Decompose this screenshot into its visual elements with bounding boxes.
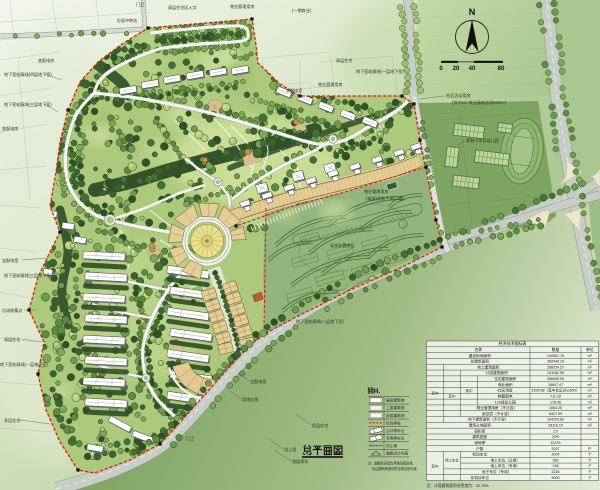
- svg-text:道路设计标高: 道路设计标高: [386, 451, 408, 456]
- svg-text:建筑密度: 建筑密度: [472, 434, 487, 439]
- svg-text:绿地率: 绿地率: [474, 440, 485, 445]
- svg-text:(其中3m²商业建筑面积600m²): (其中3m²商业建筑面积600m²): [452, 99, 507, 105]
- svg-text:140551.76: 140551.76: [547, 354, 564, 358]
- svg-text:变配电房: 变配电房: [2, 125, 18, 131]
- svg-text:241182.95: 241182.95: [547, 371, 564, 375]
- svg-text:交配电室: 交配电室: [286, 87, 302, 93]
- svg-text:标注图例构造均符合单位现为准。: 标注图例构造均符合单位现为准。: [372, 466, 420, 471]
- svg-text:地下室轮廓线(一层地下室): 地下室轮廓线(一层地下室): [356, 68, 404, 74]
- svg-text:架空层（不计容）: 架空层（不计容）: [482, 411, 512, 416]
- svg-text:专用停车位: 专用停车位: [386, 435, 405, 440]
- svg-text:地上建筑面积: 地上建筑面积: [477, 364, 499, 369]
- svg-text:2.0: 2.0: [553, 429, 558, 433]
- svg-text:地上车位（公用）: 地上车位（公用）: [491, 457, 521, 462]
- svg-text:33.0%: 33.0%: [550, 441, 561, 445]
- svg-text:5000: 5000: [552, 476, 560, 480]
- svg-text:公共停车位: 公共停车位: [386, 428, 405, 433]
- svg-text:用地红线: 用地红线: [242, 396, 258, 402]
- svg-text:现状安置房区: 现状安置房区: [330, 242, 355, 248]
- svg-text:2226: 2226: [552, 470, 560, 474]
- svg-text:136: 136: [553, 464, 559, 468]
- svg-text:多层住宅: 多层住宅: [4, 417, 20, 423]
- svg-text:规划小学及幼儿园: 规划小学及幼儿园: [466, 137, 499, 143]
- svg-text:地下车位（专用）: 地下车位（专用）: [482, 469, 512, 474]
- svg-text:物业管理用房: 物业管理用房: [318, 81, 343, 87]
- svg-text:6327.09: 6327.09: [549, 412, 562, 416]
- svg-text:206995.05: 206995.05: [547, 377, 564, 381]
- svg-text:数量: 数量: [552, 347, 560, 352]
- svg-text:高层住宅区入口: 高层住宅区入口: [168, 4, 197, 10]
- svg-text:个: 个: [588, 463, 592, 468]
- svg-text:住宅建筑面积: 住宅建筑面积: [494, 376, 516, 381]
- svg-text:120班幼儿园: 120班幼儿园: [495, 399, 516, 404]
- svg-text:容积率: 容积率: [474, 428, 485, 433]
- svg-text:282: 282: [553, 458, 559, 462]
- svg-text:(裙房)及地下室(二层): (裙房)及地下室(二层): [366, 195, 405, 201]
- svg-text:2024: 2024: [552, 453, 560, 457]
- svg-text:28118.15: 28118.15: [548, 424, 563, 428]
- svg-text:非机动车位: 非机动车位: [471, 475, 490, 480]
- svg-text:其中: 其中: [448, 394, 456, 399]
- svg-text:物管配电: 物管配电: [498, 393, 513, 398]
- svg-text:地上车位（专用）: 地上车位（专用）: [491, 463, 521, 468]
- svg-text:户数: 户数: [476, 446, 484, 451]
- svg-text:建设用地面积: 建设用地面积: [469, 353, 491, 358]
- svg-text:个: 个: [588, 457, 592, 462]
- svg-text:地下室轮廓线(三层地下室): 地下室轮廓线(三层地下室): [4, 101, 52, 107]
- svg-text:名称: 名称: [474, 347, 482, 352]
- svg-text:建筑占地面积: 建筑占地面积: [469, 423, 491, 428]
- svg-text:地下室轮廓线(四层地下室): 地下室轮廓线(四层地下室): [4, 71, 52, 77]
- svg-text:计容建筑面积: 计容建筑面积: [486, 370, 508, 375]
- svg-text:个: 个: [588, 469, 592, 474]
- svg-text:N: N: [469, 7, 476, 17]
- svg-text:40: 40: [469, 66, 476, 72]
- svg-text:二层建筑物: 二层建筑物: [386, 405, 405, 410]
- svg-text:268724.27: 268724.27: [547, 365, 564, 369]
- svg-text:地下室轮廓线(三层地下室): 地下室轮廓线(三层地下室): [4, 272, 52, 278]
- svg-text:单位: 单位: [586, 347, 594, 352]
- svg-text:(一期商业): (一期商业): [292, 7, 312, 13]
- svg-text:社区活动用房: 社区活动用房: [446, 92, 471, 98]
- svg-text:其中: 其中: [431, 391, 439, 396]
- svg-text:178.36: 178.36: [550, 400, 561, 404]
- svg-text:红线界线: 红线界线: [386, 420, 401, 425]
- svg-text:其中: 其中: [465, 388, 473, 393]
- svg-text:机动车位: 机动车位: [472, 452, 487, 457]
- svg-text:地下室轮廓线(一层地下室): 地下室轮廓线(一层地下室): [0, 361, 48, 367]
- svg-text:个: 个: [588, 452, 592, 457]
- svg-text:注：计容建筑面积毛密度为：32.75%: 注：计容建筑面积毛密度为：32.75%: [427, 483, 490, 488]
- svg-text:注：图纸标高值为黄海高程系统，: 注：图纸标高值为黄海高程系统，: [368, 461, 416, 466]
- svg-text:户: 户: [588, 446, 592, 451]
- svg-text:变配电房: 变配电房: [38, 57, 54, 63]
- svg-text:物业管理用房: 物业管理用房: [364, 188, 389, 194]
- svg-text:20: 20: [453, 66, 460, 72]
- svg-text:挡土墙: 挡土墙: [284, 446, 296, 452]
- svg-text:总建筑面积: 总建筑面积: [471, 359, 490, 364]
- svg-text:高层建筑物: 高层建筑物: [386, 398, 405, 403]
- svg-text:经济技术指标表: 经济技术指标表: [499, 340, 527, 346]
- svg-text:711.18: 711.18: [550, 394, 561, 398]
- svg-text:多层建筑物: 多层建筑物: [386, 413, 405, 418]
- svg-text:2027: 2027: [552, 447, 560, 451]
- svg-text:地面停车: 地面停车: [292, 458, 308, 464]
- svg-text:1539.68（其中社区办公600）: 1539.68（其中社区办公600）: [532, 388, 580, 393]
- svg-text:挡土墙: 挡土墙: [386, 443, 397, 448]
- svg-text:垃圾中转站: 垃圾中转站: [117, 17, 137, 23]
- svg-text:门卫: 门卫: [136, 1, 144, 7]
- svg-text:地上车位: 地上车位: [445, 458, 459, 463]
- svg-text:门卫: 门卫: [186, 435, 194, 441]
- svg-text:362940.10: 362940.10: [547, 360, 564, 364]
- svg-text:个: 个: [588, 475, 592, 480]
- svg-text:垃圾收集点: 垃圾收集点: [2, 307, 22, 313]
- svg-text:高层住宅: 高层住宅: [4, 336, 20, 342]
- svg-text:18647.47: 18647.47: [548, 383, 563, 387]
- svg-text:1064.25: 1064.25: [549, 406, 562, 410]
- svg-text:宝配电室: 宝配电室: [250, 378, 266, 384]
- svg-text:104203.83: 104203.83: [547, 418, 564, 422]
- svg-text:20%: 20%: [552, 435, 560, 439]
- svg-text:社区用房: 社区用房: [498, 388, 513, 393]
- svg-text:地下建筑面积（不计容）: 地下建筑面积（不计容）: [468, 417, 509, 422]
- svg-text:其中: 其中: [431, 463, 439, 468]
- svg-text:80: 80: [498, 66, 505, 72]
- svg-text:地下室轮廓线(一层地下室): 地下室轮廓线(一层地下室): [296, 318, 344, 324]
- svg-text:低层住宅: 低层住宅: [312, 422, 328, 428]
- svg-text:宝配电室: 宝配电室: [2, 257, 18, 263]
- svg-text:物业管理用房（不计容）: 物业管理用房（不计容）: [476, 405, 517, 410]
- svg-text:物业管理用房: 物业管理用房: [230, 3, 255, 9]
- svg-text:商业面积: 商业面积: [498, 382, 513, 387]
- svg-text:高层住宅: 高层住宅: [336, 57, 352, 63]
